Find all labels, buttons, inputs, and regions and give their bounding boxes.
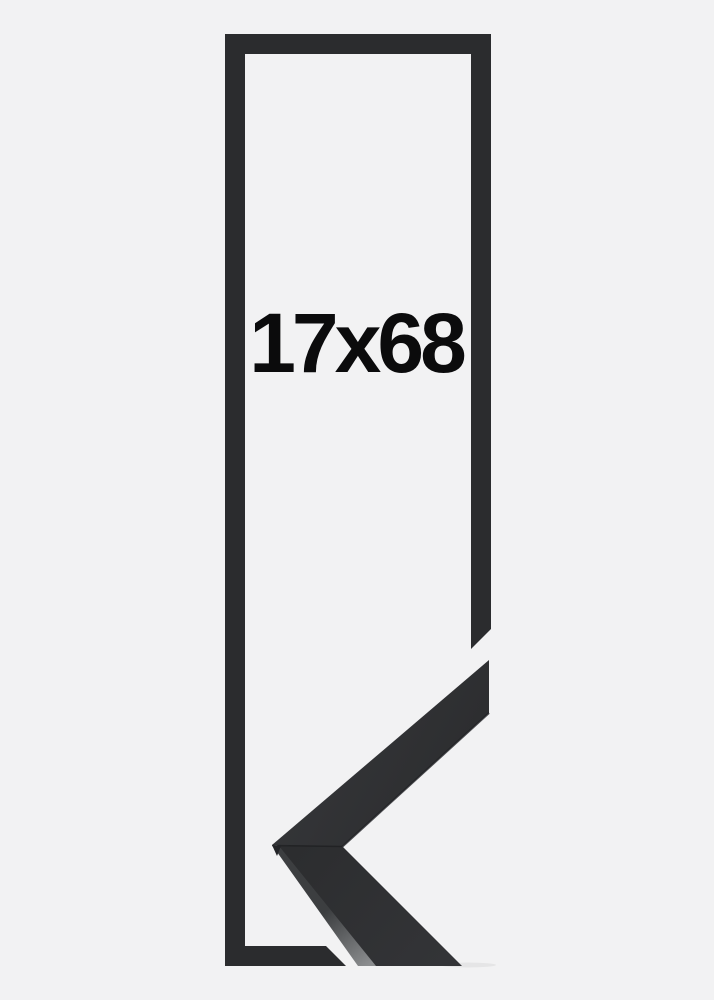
frame-size-illustration	[0, 0, 714, 1000]
outline-left-bar	[225, 34, 245, 966]
outline-bottom-bar	[225, 946, 346, 966]
outline-top-bar	[225, 34, 491, 54]
product-image: 17x68	[0, 0, 714, 1000]
sample-upper-arm	[272, 660, 489, 847]
outline-right-bar	[471, 54, 491, 649]
frame-corner-sample-photo	[272, 660, 496, 968]
frame-size-label: 17x68	[245, 299, 467, 387]
sample-miter-seam	[272, 846, 342, 847]
